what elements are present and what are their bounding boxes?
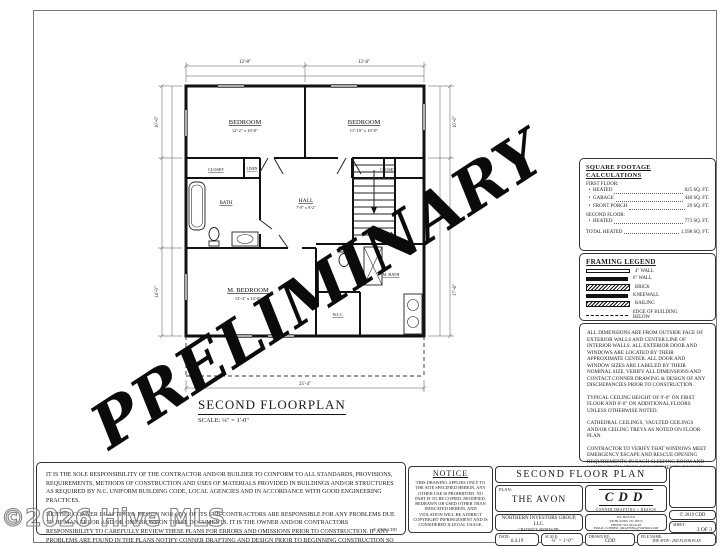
framing-legend-box: FRAMING LEGEND 4" WALL 6" WALL BRICK KNE… (579, 253, 716, 321)
sqft-row: • HEATED 825 SQ. FT. (586, 188, 709, 195)
plan-name-value: THE AVON (499, 495, 579, 505)
date-box: DATE: 6.4.19 (495, 533, 539, 546)
legend-label: BRICK (635, 285, 650, 290)
room-label-closet-right: CLOSET (380, 167, 396, 172)
legend-label: 4" WALL (635, 269, 654, 274)
drafter-contact-box: P.O. BOX 841 RICHLANDS, NC 28574 PHONE: … (585, 514, 667, 531)
room-label-hall: HALL (299, 198, 314, 204)
legend-row: EDGE OF BUILDING BELOW (586, 310, 709, 321)
note-paragraph: CATHEDRAL CEILINGS, VAULTED CEILINGS AND… (587, 420, 708, 440)
toilet-fixture (209, 228, 219, 247)
copyright-box: © 2019 CDD (669, 510, 716, 520)
square-footage-title: SQUARE FOOTAGE CALCULATIONS (586, 164, 656, 180)
bullet: • (586, 196, 593, 203)
client-address-line1: CHADWICK SHORES DR. (496, 528, 582, 532)
dim-label-right-upper: 10'-0" (453, 116, 458, 128)
brick-swatch-icon (586, 284, 630, 291)
bullet: • (586, 204, 593, 211)
general-notes-box: ALL DIMENSIONS ARE FROM OUTSIDE FACE OF … (579, 323, 716, 462)
cdd-logo: CDD (599, 489, 653, 506)
sqft-total-value: 1,598 SQ. FT. (681, 230, 709, 235)
legend-label: KNEEWALL (633, 293, 659, 298)
legend-row: RAILING (586, 301, 709, 308)
dim-label-right-lower: 17'-6" (453, 284, 458, 296)
note-paragraph: TYPICAL CEILING HEIGHT OF 9'-0" ON FIRST… (587, 395, 708, 415)
sqft-row: • GARAGE 440 SQ. FT. (586, 196, 709, 203)
note-paragraph: ALL DIMENSIONS ARE FROM OUTSIDE FACE OF … (587, 330, 708, 389)
plan-name-box: PLAN: THE AVON (495, 485, 583, 512)
kneewall-swatch-icon (586, 294, 628, 298)
dim-label-top-left: 12'-8" (239, 60, 251, 65)
legend-label: RAILING (635, 301, 655, 306)
titleblock-blank-box (669, 466, 716, 508)
bullet: • (586, 188, 593, 195)
drawn-by-box: DRAWN BY: CDD (585, 533, 635, 546)
sqft-total-row: TOTAL HEATED 1,598 SQ. FT. (586, 230, 709, 235)
dim-label-left-lower: 14'-0" (155, 286, 160, 298)
hive-mls-watermark: ©2026 Hive MLS (1, 504, 225, 532)
room-label-bedroom-left: BEDROOM (229, 119, 262, 126)
titleblock-sheet-title: SECOND FLOOR PLAN (495, 466, 667, 483)
dim-label-top-right: 12'-8" (358, 60, 370, 65)
double-sink-vanity-fixture (404, 294, 422, 334)
sqft-total-label: TOTAL HEATED (586, 230, 622, 235)
notice-title: NOTICE (413, 469, 488, 478)
legend-label: 6" WALL (633, 276, 652, 281)
room-label-closet-left: CLOSET (208, 167, 224, 172)
date-value: 6.4.19 (499, 539, 535, 544)
scale-box: SCALE: ¼" = 1'-0" (541, 533, 583, 546)
sqft-section: SECOND FLOOR: (586, 213, 709, 218)
room-dims-bedroom-left: 12'-2" x 10'-0" (232, 128, 258, 133)
file-name-box: FILE NAME: THE AVON - 2ND FLOOR PLAN (637, 533, 716, 546)
sqft-value: 29 SQ. FT. (687, 204, 709, 211)
plan-title: SECOND FLOORPLAN (198, 397, 346, 415)
sqft-section: FIRST FLOOR: (586, 182, 709, 187)
notice-box: NOTICE THIS DRAWING APPLIES ONLY TO THE … (408, 466, 493, 533)
scale-value: ¼" = 1'-0" (545, 539, 579, 544)
legend-row: 6" WALL (586, 276, 709, 281)
legend-label: EDGE OF BUILDING BELOW (633, 310, 693, 321)
plan-scale: SCALE: ¼" = 1'-0" (198, 417, 346, 424)
room-label-linen: LINEN (247, 167, 258, 171)
framing-legend-title: FRAMING LEGEND (586, 258, 709, 266)
legend-row: BRICK (586, 284, 709, 291)
bullet: • (586, 219, 593, 226)
client-box: NORTHERN INVESTORS GROUP, LLC. CHADWICK … (495, 514, 583, 531)
room-dims-bedroom-right: 11'-10" x 10'-0" (350, 128, 379, 133)
dim-label-bottom-overall: 25'-4" (299, 382, 311, 387)
edge-of-building-swatch-icon (586, 315, 628, 316)
room-label-bedroom-right: BEDROOM (348, 119, 381, 126)
room-dims-hall: 7'-8" x 9'-2" (296, 205, 316, 210)
disclaimer-copyright: © 2019 CDD (373, 527, 397, 532)
plan-name-label: PLAN: (499, 487, 579, 492)
sqft-value: 440 SQ. FT. (685, 196, 709, 203)
notice-body: THIS DRAWING APPLIES ONLY TO THE SITE SP… (413, 480, 488, 528)
bathtub-fixture (189, 182, 205, 230)
sqft-value: 825 SQ. FT. (685, 188, 709, 195)
sqft-label: HEATED (593, 219, 612, 226)
railing-swatch-icon (586, 301, 630, 308)
square-footage-box: SQUARE FOOTAGE CALCULATIONS FIRST FLOOR:… (579, 158, 716, 251)
sqft-label: GARAGE (593, 196, 614, 203)
sqft-row: • HEATED 773 SQ. FT. (586, 219, 709, 226)
sheet-number-box: SHEET: 3 OF 3 (669, 521, 716, 533)
legend-row: KNEEWALL (586, 293, 709, 298)
drawn-by-value: CDD (589, 539, 631, 544)
client-name: NORTHERN INVESTORS GROUP, LLC. (496, 516, 582, 528)
sqft-value: 773 SQ. FT. (685, 219, 709, 226)
sink-vanity-fixture (232, 232, 258, 246)
sqft-label: HEATED (593, 188, 612, 195)
wall4-swatch-icon (586, 269, 630, 274)
room-label-bath: BATH (219, 201, 232, 206)
plan-title-block: SECOND FLOORPLAN SCALE: ¼" = 1'-0" (198, 396, 346, 424)
sqft-row: • FRONT PORCH 29 SQ. FT. (586, 204, 709, 211)
drawing-sheet: 12'-8" 12'-8" 10'-0" 14'-0" 10'-0" 17'-6… (0, 0, 720, 547)
contact-line: EMAIL: CONNER_DRAFTING@YAHOO.COM (586, 527, 666, 531)
legend-row: 4" WALL (586, 269, 709, 274)
dim-label-left-upper: 10'-0" (155, 116, 160, 128)
wall6-swatch-icon (586, 277, 628, 281)
sqft-label: FRONT PORCH (593, 204, 627, 211)
disclaimer-paragraph: IT IS THE SOLE RESPONSIBILITY OF THE CON… (46, 471, 396, 506)
file-name-value: THE AVON - 2ND FLOOR PLAN (641, 539, 712, 543)
cdd-logo-box: CDD CONNER DRAFTING + DESIGN (585, 485, 667, 512)
cdd-logo-subtitle: CONNER DRAFTING + DESIGN (586, 508, 666, 512)
